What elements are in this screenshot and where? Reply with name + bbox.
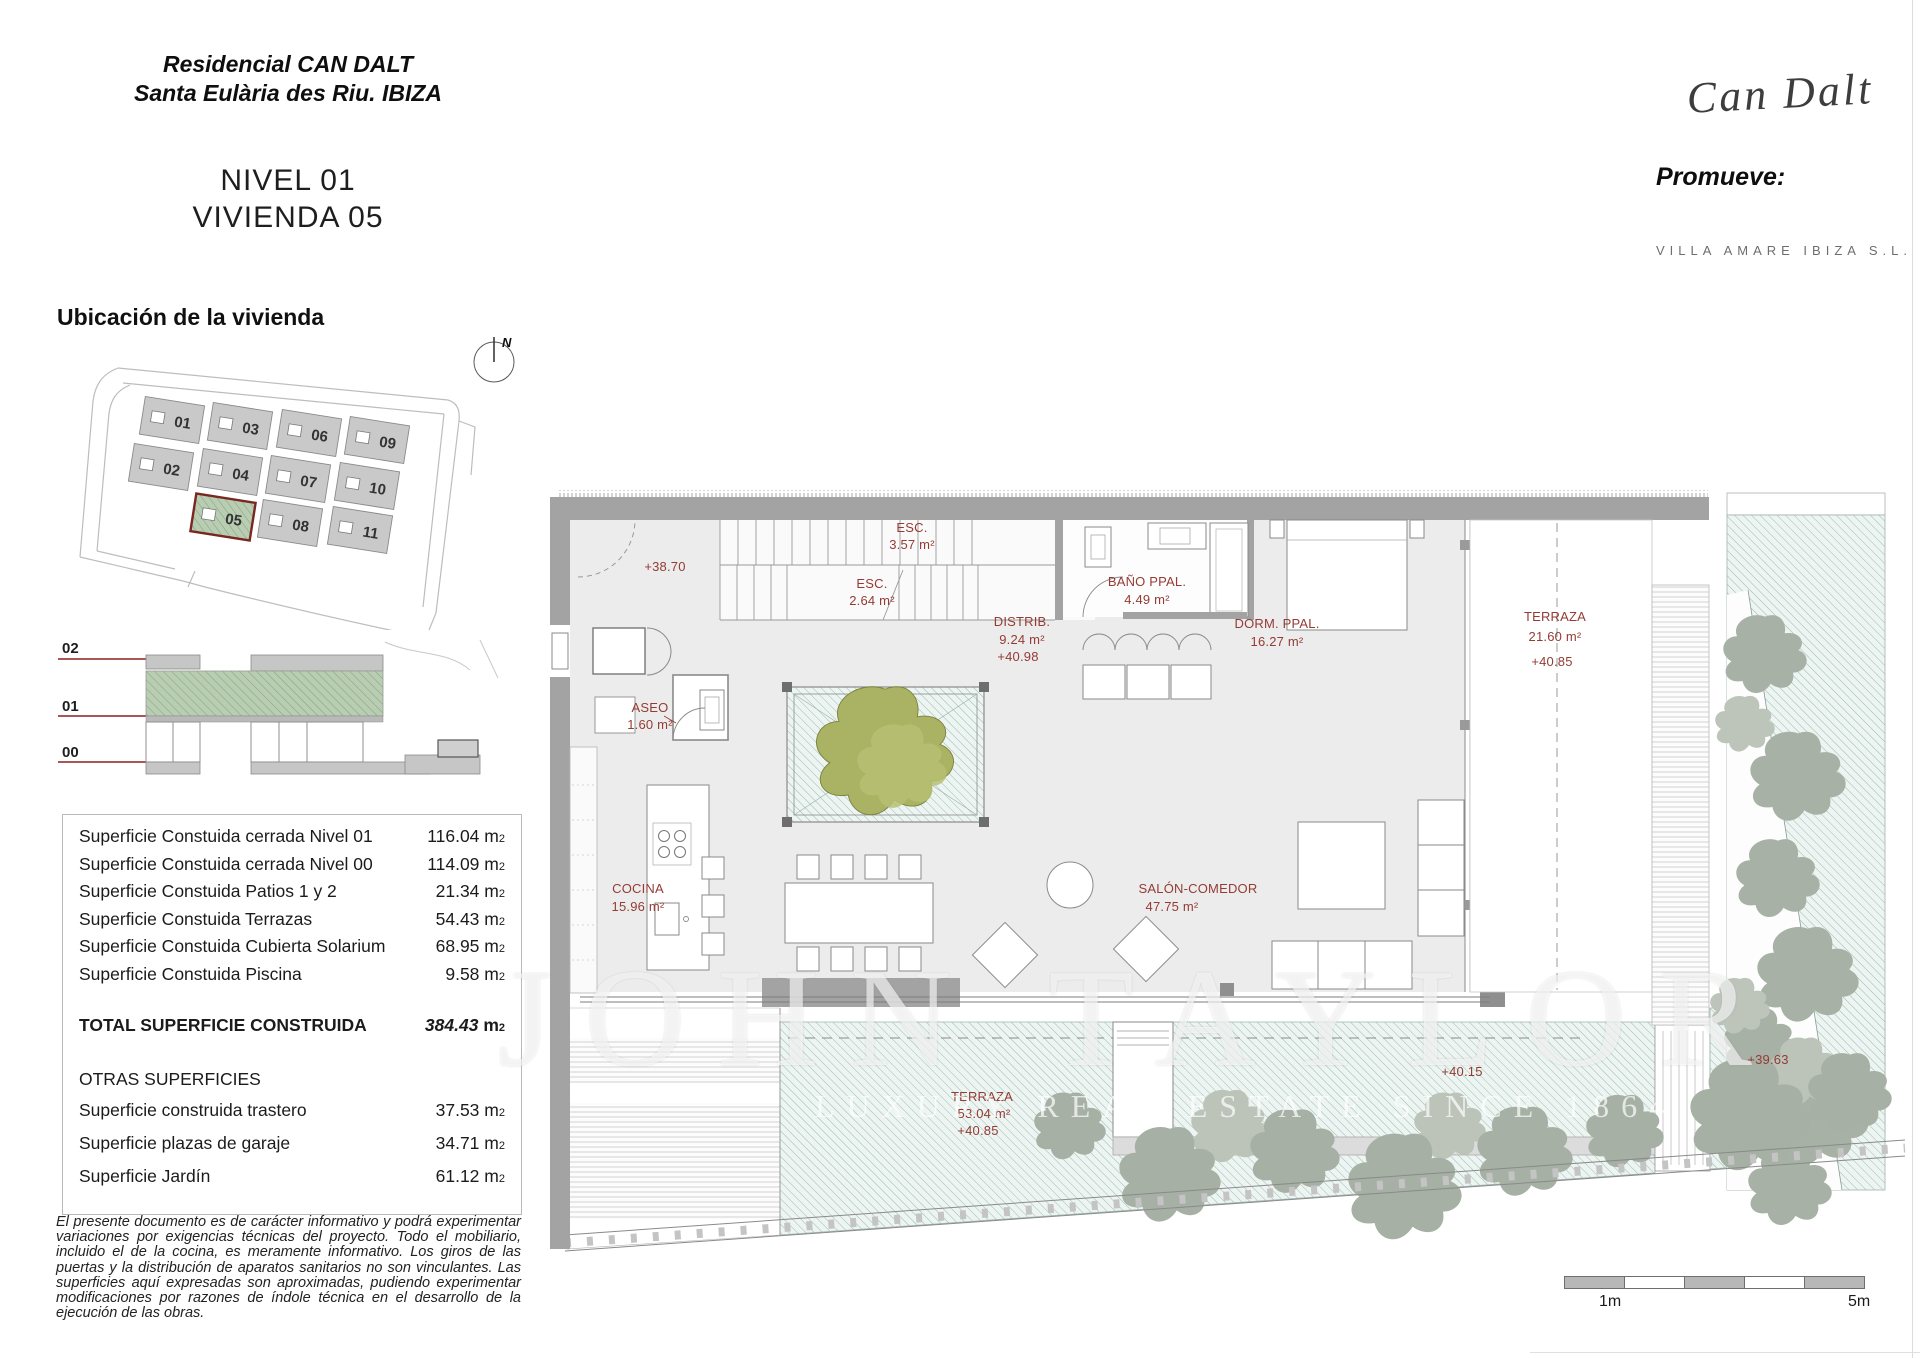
table-row: Superficie Constuida Terrazas54.43 m2: [79, 910, 505, 931]
table-row: Superficie Constuida Piscina9.58 m2: [79, 965, 505, 986]
site-unit-08: 08: [257, 500, 322, 547]
coffee-table: [1298, 822, 1385, 909]
total-value: 384.43 m2: [425, 1016, 505, 1037]
svg-text:4.49 m²: 4.49 m²: [1124, 592, 1170, 607]
level-title: NIVEL 01 VIVIENDA 05: [88, 162, 488, 236]
can-dalt-logo: Can Dalt: [1644, 61, 1916, 126]
scale-segment: [1684, 1276, 1745, 1289]
svg-text:9.24 m²: 9.24 m²: [999, 632, 1045, 647]
level-line1: NIVEL 01: [88, 162, 488, 199]
svg-text:BAÑO PPAL.: BAÑO PPAL.: [1108, 574, 1186, 589]
svg-text:2.64 m²: 2.64 m²: [849, 593, 895, 608]
svg-text:TERRAZA: TERRAZA: [1524, 609, 1586, 624]
section-level-02: 02: [62, 640, 79, 657]
site-unit-11: 11: [327, 507, 392, 554]
row-label: Superficie Constuida Piscina: [79, 965, 302, 986]
row-value: 9.58 m2: [445, 965, 505, 986]
svg-text:02: 02: [162, 461, 181, 480]
right-terrace: [1470, 520, 1709, 1025]
scale-bar: 1m 5m: [1565, 1276, 1865, 1289]
row-label: Superficie construida trastero: [79, 1101, 307, 1122]
row-label: Superficie Constuida Cubierta Solarium: [79, 937, 385, 958]
row-value: 68.95 m2: [436, 937, 505, 958]
table-row: Superficie Constuida Patios 1 y 221.34 m…: [79, 882, 505, 903]
svg-text:+40.85: +40.85: [957, 1123, 998, 1138]
table-row: Superficie Constuida cerrada Nivel 00114…: [79, 855, 505, 876]
project-title-line1: Residencial CAN DALT: [88, 50, 488, 79]
site-unit-05-highlighted: 05: [190, 494, 255, 541]
plan-sheet: { "header": { "project_title_line1": "Re…: [0, 0, 1920, 1358]
site-roads: [80, 368, 475, 630]
project-title: Residencial CAN DALT Santa Eulària des R…: [88, 50, 488, 108]
site-unit-03: 03: [207, 403, 272, 450]
site-units: 01 03 06 09 02 04 07 10 05 08 11: [128, 397, 409, 554]
row-value: 61.12 m2: [436, 1167, 505, 1188]
staircase: [720, 520, 1095, 620]
compass-icon: N: [474, 335, 514, 382]
location-heading: Ubicación de la vivienda: [57, 304, 324, 331]
table-row: Superficie Jardín61.12 m2: [79, 1167, 505, 1188]
site-unit-10: 10: [334, 463, 399, 510]
svg-text:16.27 m²: 16.27 m²: [1251, 634, 1304, 649]
svg-text:47.75 m²: 47.75 m²: [1146, 899, 1199, 914]
row-value: 54.43 m2: [436, 910, 505, 931]
row-value: 37.53 m2: [436, 1101, 505, 1122]
wood-deck: [567, 1008, 780, 1249]
svg-text:05: 05: [224, 511, 243, 530]
level-line2: VIVIENDA 05: [88, 199, 488, 236]
sofa: [1272, 941, 1412, 989]
svg-text:07: 07: [299, 473, 318, 492]
total-label: TOTAL SUPERFICIE CONSTRUIDA: [79, 1016, 367, 1037]
scale-label-1m: 1m: [1599, 1293, 1621, 1311]
svg-text:06: 06: [310, 427, 329, 446]
section-level-01: 01: [62, 698, 79, 715]
table-row: Superficie Constuida cerrada Nivel 01116…: [79, 827, 505, 848]
row-label: Superficie Constuida cerrada Nivel 00: [79, 855, 373, 876]
site-unit-06: 06: [276, 410, 341, 457]
page-edge: [1530, 1352, 1920, 1353]
svg-text:21.60 m²: 21.60 m²: [1529, 629, 1582, 644]
scale-label-5m: 5m: [1848, 1293, 1870, 1311]
row-label: Superficie Jardín: [79, 1167, 210, 1188]
svg-text:04: 04: [231, 466, 251, 486]
svg-text:10: 10: [368, 480, 387, 499]
compass-north-label: N: [502, 335, 512, 350]
table-row: Superficie construida trastero37.53 m2: [79, 1101, 505, 1122]
project-title-line2: Santa Eulària des Riu. IBIZA: [88, 79, 488, 108]
interior-patio: [782, 682, 989, 827]
svg-text:+39.63: +39.63: [1747, 1052, 1788, 1067]
section-level-00: 00: [62, 744, 79, 761]
svg-text:1.60 m²: 1.60 m²: [627, 717, 673, 732]
svg-text:01: 01: [173, 414, 192, 433]
svg-text:11: 11: [361, 524, 379, 543]
sliding-door-track: [580, 997, 1490, 1002]
svg-text:08: 08: [291, 517, 310, 536]
svg-text:+38.70: +38.70: [644, 559, 685, 574]
scale-segment: [1804, 1276, 1865, 1289]
svg-text:SALÓN-COMEDOR: SALÓN-COMEDOR: [1139, 881, 1258, 896]
svg-text:ESC.: ESC.: [856, 576, 887, 591]
row-value: 34.71 m2: [436, 1134, 505, 1155]
scale-segment: [1744, 1276, 1805, 1289]
svg-text:15.96 m²: 15.96 m²: [612, 899, 665, 914]
svg-text:+40.98: +40.98: [997, 649, 1038, 664]
floor-plan: ESC. 3.57 m² +38.70 ESC. 2.64 m² DISTRIB…: [550, 485, 1920, 1310]
promoter-name: VILLA AMARE IBIZA S.L.: [1656, 243, 1912, 258]
scale-segment: [1564, 1276, 1625, 1289]
site-plan: N 01 03 06 09 02 04 07 10 05 08 11: [55, 335, 525, 630]
site-unit-09: 09: [344, 417, 409, 464]
row-label: Superficie Constuida Terrazas: [79, 910, 312, 931]
row-value: 114.09 m2: [427, 855, 505, 876]
svg-text:+40.15: +40.15: [1441, 1064, 1482, 1079]
svg-text:03: 03: [241, 420, 260, 439]
svg-text:3.57 m²: 3.57 m²: [889, 537, 935, 552]
pergola-louvers: [1652, 585, 1709, 1025]
svg-text:DISTRIB.: DISTRIB.: [994, 614, 1051, 629]
row-value: 21.34 m2: [436, 882, 505, 903]
svg-text:ASEO: ASEO: [632, 700, 669, 715]
areas-table: Superficie Constuida cerrada Nivel 01116…: [62, 814, 522, 1215]
svg-text:+40.85: +40.85: [1531, 654, 1572, 669]
table-row: Superficie Constuida Cubierta Solarium68…: [79, 937, 505, 958]
table-total-row: TOTAL SUPERFICIE CONSTRUIDA384.43 m2: [79, 1016, 505, 1037]
svg-text:DORM. PPAL.: DORM. PPAL.: [1234, 616, 1319, 631]
site-unit-07: 07: [265, 456, 330, 503]
section-building: [146, 655, 480, 774]
page-edge: [1912, 0, 1913, 1358]
svg-text:TERRAZA: TERRAZA: [951, 1089, 1013, 1104]
shaft: [593, 628, 645, 674]
site-unit-04: 04: [197, 449, 262, 496]
svg-text:09: 09: [378, 434, 397, 453]
other-surfaces-heading: OTRAS SUPERFICIES: [79, 1070, 505, 1088]
dining-table: [785, 883, 933, 943]
sofa-2: [1418, 800, 1464, 936]
row-value: 116.04 m2: [427, 827, 505, 848]
kitchen-island: [647, 785, 709, 970]
scale-segment: [1624, 1276, 1685, 1289]
row-label: Superficie plazas de garaje: [79, 1134, 290, 1155]
row-label: Superficie Constuida Patios 1 y 2: [79, 882, 337, 903]
svg-text:ESC.: ESC.: [896, 520, 927, 535]
svg-text:COCINA: COCINA: [612, 881, 664, 896]
disclaimer-text: El presente documento es de carácter inf…: [56, 1215, 521, 1321]
site-unit-02: 02: [128, 444, 193, 491]
pool: [1113, 1022, 1173, 1137]
table-row: Superficie plazas de garaje34.71 m2: [79, 1134, 505, 1155]
promoter-label: Promueve:: [1656, 163, 1785, 192]
section-diagram: 02 01 00: [55, 640, 525, 790]
section-nivel01-highlight: [146, 671, 383, 716]
site-unit-01: 01: [139, 397, 204, 444]
row-label: Superficie Constuida cerrada Nivel 01: [79, 827, 373, 848]
svg-text:53.04 m²: 53.04 m²: [958, 1106, 1011, 1121]
